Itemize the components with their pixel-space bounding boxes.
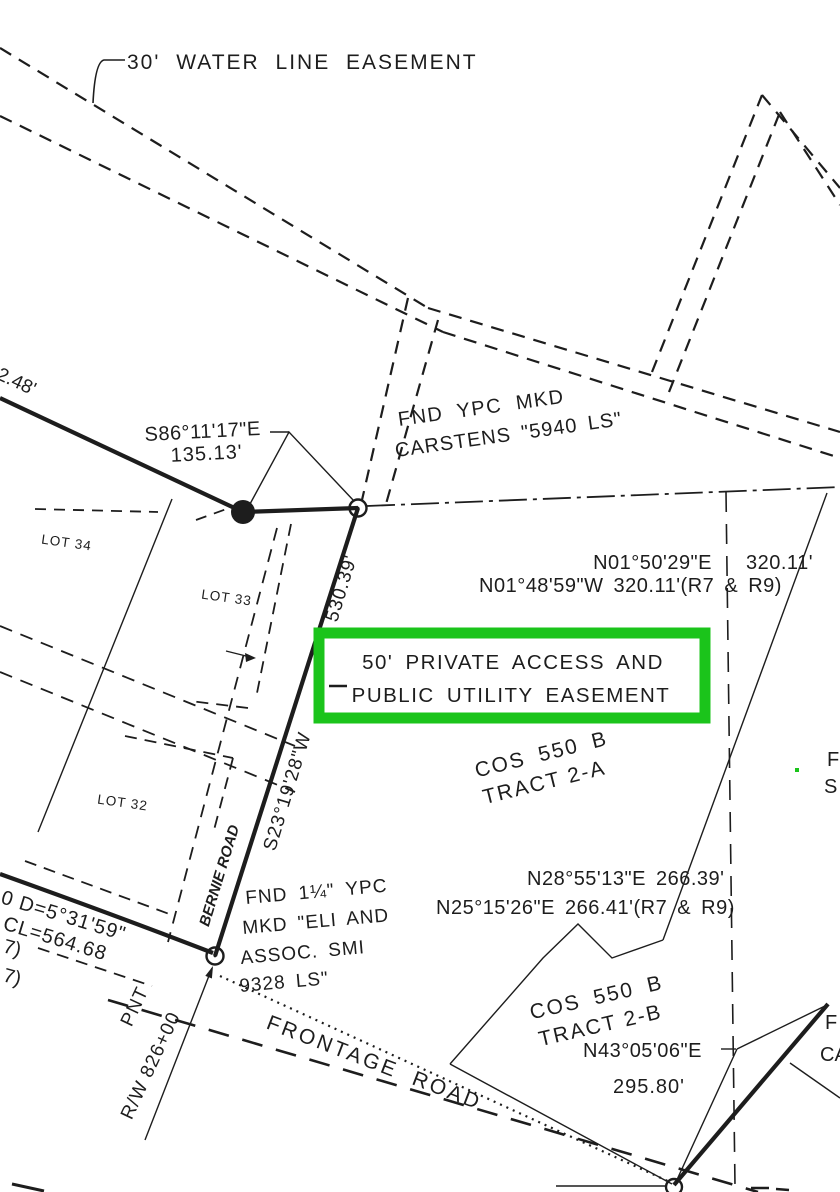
- bottom-monument: [666, 1179, 682, 1192]
- highlight-annotation: 50' PRIVATE ACCESS AND PUBLIC UTILITY EA…: [319, 633, 705, 718]
- s86-leader: [250, 432, 354, 504]
- plat-drawing: 50' PRIVATE ACCESS AND PUBLIC UTILITY EA…: [0, 0, 840, 1192]
- label-dist-n01-meas: 320.11': [746, 552, 813, 574]
- highlighted-easement-label-line1: 50' PRIVATE ACCESS AND: [362, 651, 664, 674]
- label-dist-n43: 295.80': [613, 1076, 685, 1098]
- lot-line: [38, 499, 172, 832]
- label-bernie-road: BERNIE ROAD: [196, 823, 243, 929]
- label-brg-n25: N25°15'26"E 266.41'(R7 & R9): [436, 897, 735, 919]
- label-lot-33: LOT 33: [200, 587, 252, 609]
- label-brg-n01-rec: N01°48'59"W 320.11'(R7 & R9): [479, 575, 782, 597]
- label-brg-n43: N43°05'06"E: [583, 1040, 702, 1062]
- label-fnd-eli-2: MKD "ELI AND: [242, 905, 390, 939]
- label-lot-32: LOT 32: [96, 792, 148, 814]
- monument-markers: [207, 500, 800, 1192]
- water-easement-leader: [93, 60, 125, 103]
- label-edge-partial-ca: CA: [820, 1044, 840, 1066]
- label-dist-135-13: 135.13': [170, 441, 243, 467]
- label-edge-partial-f1: F: [827, 749, 839, 771]
- north-boundary-dash-dot: [367, 487, 840, 506]
- label-dist-62-48: 62.48': [0, 359, 39, 400]
- rw-arrowhead: [205, 966, 213, 979]
- label-water-line-easement: 30' WATER LINE EASEMENT: [127, 51, 478, 74]
- label-fnd-eli-1: FND 1¼" YPC: [245, 876, 389, 909]
- label-brg-n28: N28°55'13"E 266.39': [527, 868, 724, 890]
- green-dot-artifact: [795, 768, 799, 772]
- label-fnd-eli-3: ASSOC. SMI: [240, 937, 366, 969]
- map-labels: 30' WATER LINE EASEMENT 62.48' S86°11'17…: [0, 51, 840, 1123]
- label-brg-s86: S86°11'17"E: [144, 418, 261, 446]
- label-edge-partial-f2: F: [825, 1012, 837, 1034]
- label-edge-partial-s: S: [824, 776, 837, 798]
- setback-arrowhead: [245, 653, 256, 662]
- found-monument-filled: [231, 500, 255, 524]
- label-lot-34: LOT 34: [40, 532, 92, 554]
- label-ref-7a: 7): [1, 936, 24, 962]
- label-fnd-eli-4: 9328 LS": [239, 968, 330, 997]
- label-pnt: PNT: [117, 984, 153, 1030]
- highlighted-easement-label-line2: PUBLIC UTILITY EASEMENT: [352, 684, 671, 707]
- label-ref-7b: 7): [1, 965, 24, 991]
- label-road-dist: 530.39': [322, 552, 362, 624]
- label-frontage-road: FRONTAGE ROAD: [263, 1011, 485, 1114]
- label-brg-n01-meas: N01°50'29"E: [593, 552, 712, 574]
